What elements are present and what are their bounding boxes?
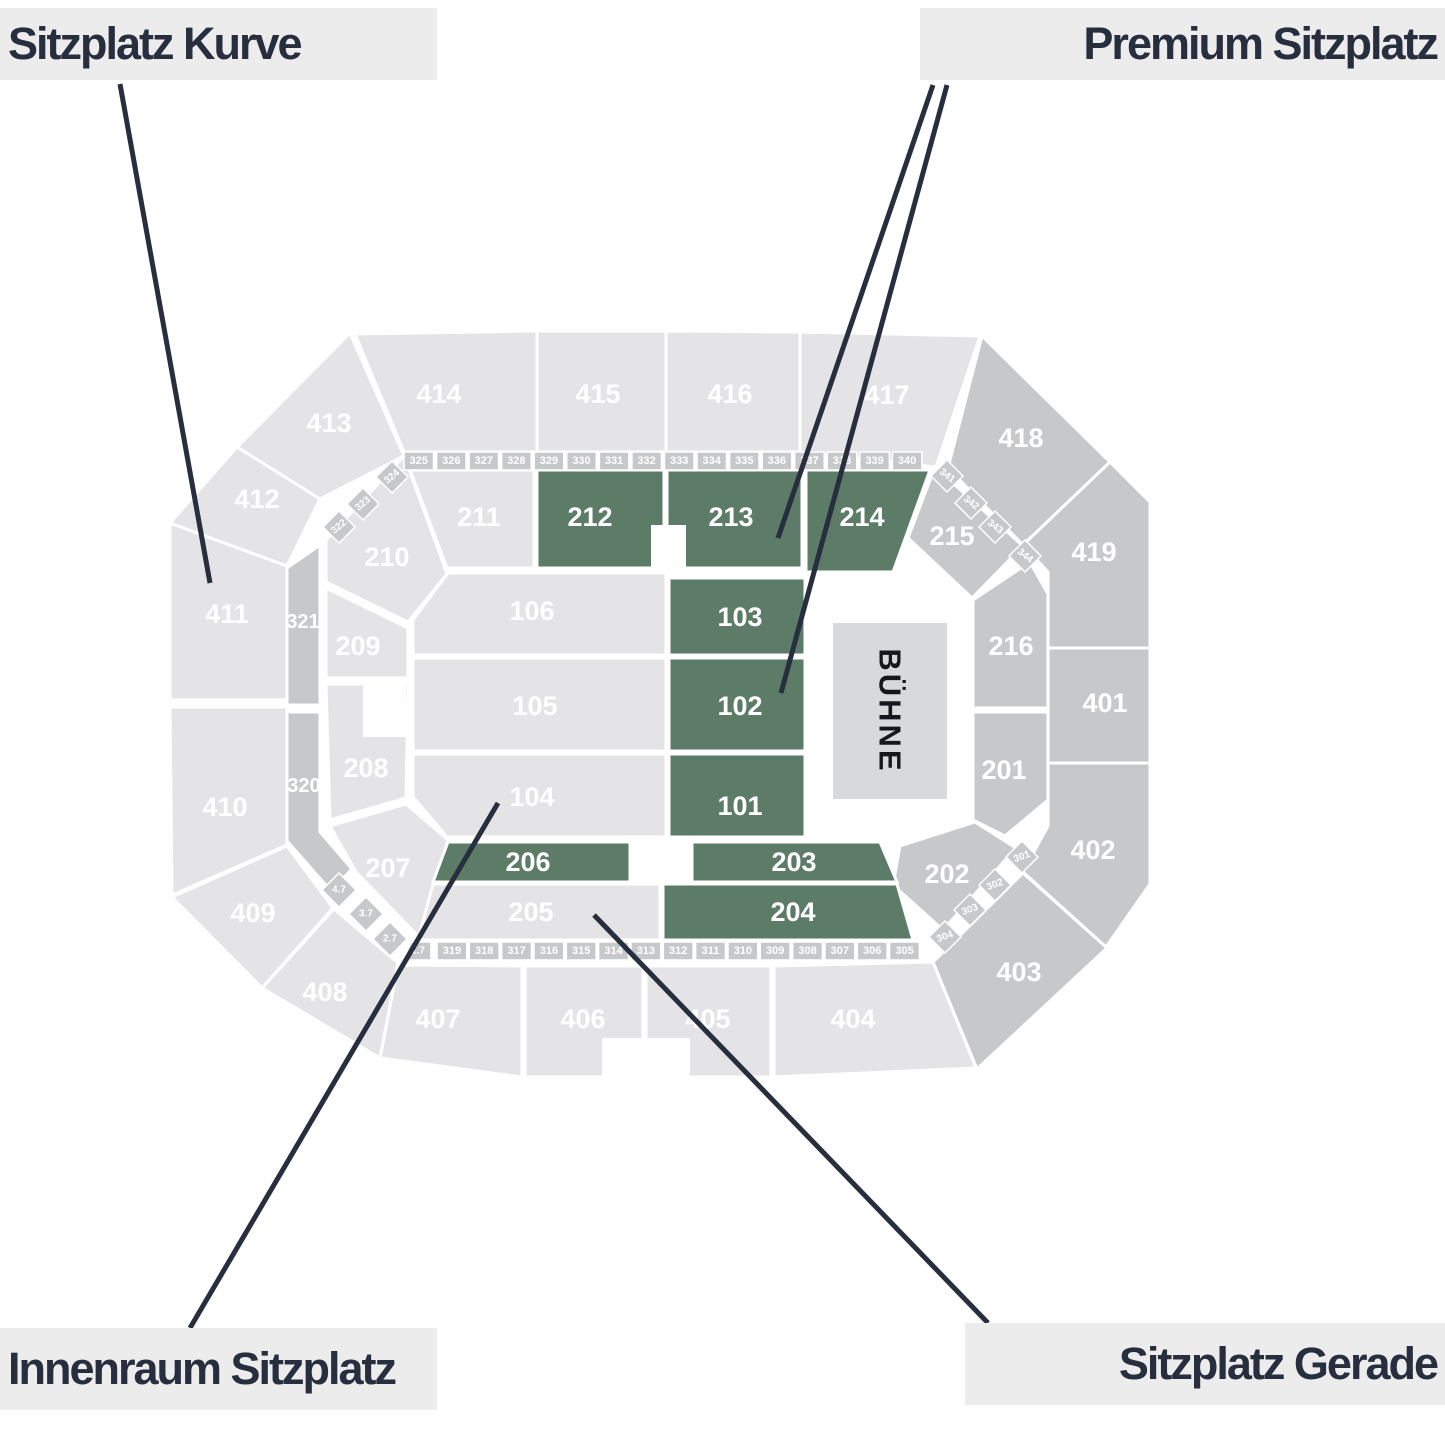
section-213-label: 213 <box>708 502 753 532</box>
section-103-label: 103 <box>717 602 762 632</box>
section-415-label: 415 <box>575 379 620 409</box>
section-307-label: 307 <box>831 945 849 957</box>
section-201-label: 201 <box>981 755 1026 785</box>
section-404-label: 404 <box>830 1004 875 1034</box>
section-401-label: 401 <box>1082 688 1127 718</box>
section-216-label: 216 <box>988 631 1033 661</box>
section-4.7-label: 4.7 <box>332 885 346 896</box>
section-214-label: 214 <box>839 502 884 532</box>
section-331-label: 331 <box>605 455 623 467</box>
section-3.7-label: 3.7 <box>359 909 373 920</box>
section-210-label: 210 <box>364 542 409 572</box>
section-318-label: 318 <box>475 945 493 957</box>
section-2.7-label: 2.7 <box>383 934 397 945</box>
section-412-label: 412 <box>234 484 279 514</box>
section-407-label: 407 <box>415 1004 460 1034</box>
legend-sitzplatz-kurve: Sitzplatz Kurve <box>0 8 437 80</box>
section-204-label: 204 <box>770 897 815 927</box>
section-104-label: 104 <box>509 782 554 812</box>
section-416-label: 416 <box>707 379 752 409</box>
section-321-label: 321 <box>286 611 319 633</box>
section-329-label: 329 <box>540 455 558 467</box>
section-308-label: 308 <box>798 945 816 957</box>
section-320-label: 320 <box>287 775 320 797</box>
section-418-label: 418 <box>998 423 1043 453</box>
legend-innenraum-sitzplatz: Innenraum Sitzplatz <box>0 1328 437 1410</box>
section-207-label: 207 <box>365 853 410 883</box>
section-403-label: 403 <box>996 957 1041 987</box>
section-332-label: 332 <box>637 455 655 467</box>
section-209-label: 209 <box>335 631 380 661</box>
section-211-label: 211 <box>457 502 501 532</box>
section-309-label: 309 <box>766 945 784 957</box>
section-203-label: 203 <box>771 847 816 877</box>
section-314-label: 314 <box>604 945 623 957</box>
aisle-cutout <box>602 1038 690 1077</box>
section-327-label: 327 <box>475 455 493 467</box>
aisle-cutout <box>363 678 406 737</box>
section-402-label: 402 <box>1070 835 1115 865</box>
section-333-label: 333 <box>670 455 688 467</box>
section-326-label: 326 <box>442 455 460 467</box>
section-409-label: 409 <box>230 898 275 928</box>
stage-label: BÜHNE <box>873 648 908 773</box>
section-212-label: 212 <box>567 502 612 532</box>
section-408-label: 408 <box>302 977 347 1007</box>
arena-map-svg: 4134144154164174184194014024034044054064… <box>0 0 1445 1445</box>
section-417-label: 417 <box>864 380 909 410</box>
section-101-label: 101 <box>717 791 762 821</box>
section-336-label: 336 <box>768 455 786 467</box>
section-316-label: 316 <box>540 945 558 957</box>
section-339-label: 339 <box>865 455 883 467</box>
section-414-label: 414 <box>416 379 461 409</box>
section-317-label: 317 <box>507 945 525 957</box>
section-306-label: 306 <box>863 945 881 957</box>
section-334-label: 334 <box>703 455 722 467</box>
section-313-label: 313 <box>637 945 655 957</box>
section-315-label: 315 <box>572 945 590 957</box>
section-340-label: 340 <box>898 455 916 467</box>
section-311-label: 311 <box>702 945 720 957</box>
section-215-label: 215 <box>929 521 974 551</box>
section-102-label: 102 <box>717 691 762 721</box>
section-410-label: 410 <box>202 792 247 822</box>
seating-map: 4134144154164174184194014024034044054064… <box>0 0 1445 1445</box>
section-419-label: 419 <box>1071 537 1116 567</box>
section-406-label: 406 <box>560 1004 605 1034</box>
section-330-label: 330 <box>572 455 590 467</box>
section-106-label: 106 <box>509 596 554 626</box>
section-208-label: 208 <box>343 753 388 783</box>
section-310-label: 310 <box>734 945 752 957</box>
section-413-label: 413 <box>306 408 351 438</box>
section-319-label: 319 <box>443 945 461 957</box>
legend-premium-sitzplatz: Premium Sitzplatz <box>920 8 1445 80</box>
section-411-label: 411 <box>205 599 249 629</box>
section-328-label: 328 <box>507 455 525 467</box>
leader-line <box>120 84 210 583</box>
section-305-label: 305 <box>895 945 913 957</box>
section-335-label: 335 <box>735 455 753 467</box>
section-312-label: 312 <box>669 945 687 957</box>
section-206-label: 206 <box>505 847 550 877</box>
section-325-label: 325 <box>410 455 428 467</box>
section-202-label: 202 <box>924 859 969 889</box>
legend-sitzplatz-gerade: Sitzplatz Gerade <box>965 1323 1445 1405</box>
aisle-cutout <box>651 525 686 572</box>
section-205-label: 205 <box>508 897 553 927</box>
section-105-label: 105 <box>512 691 557 721</box>
